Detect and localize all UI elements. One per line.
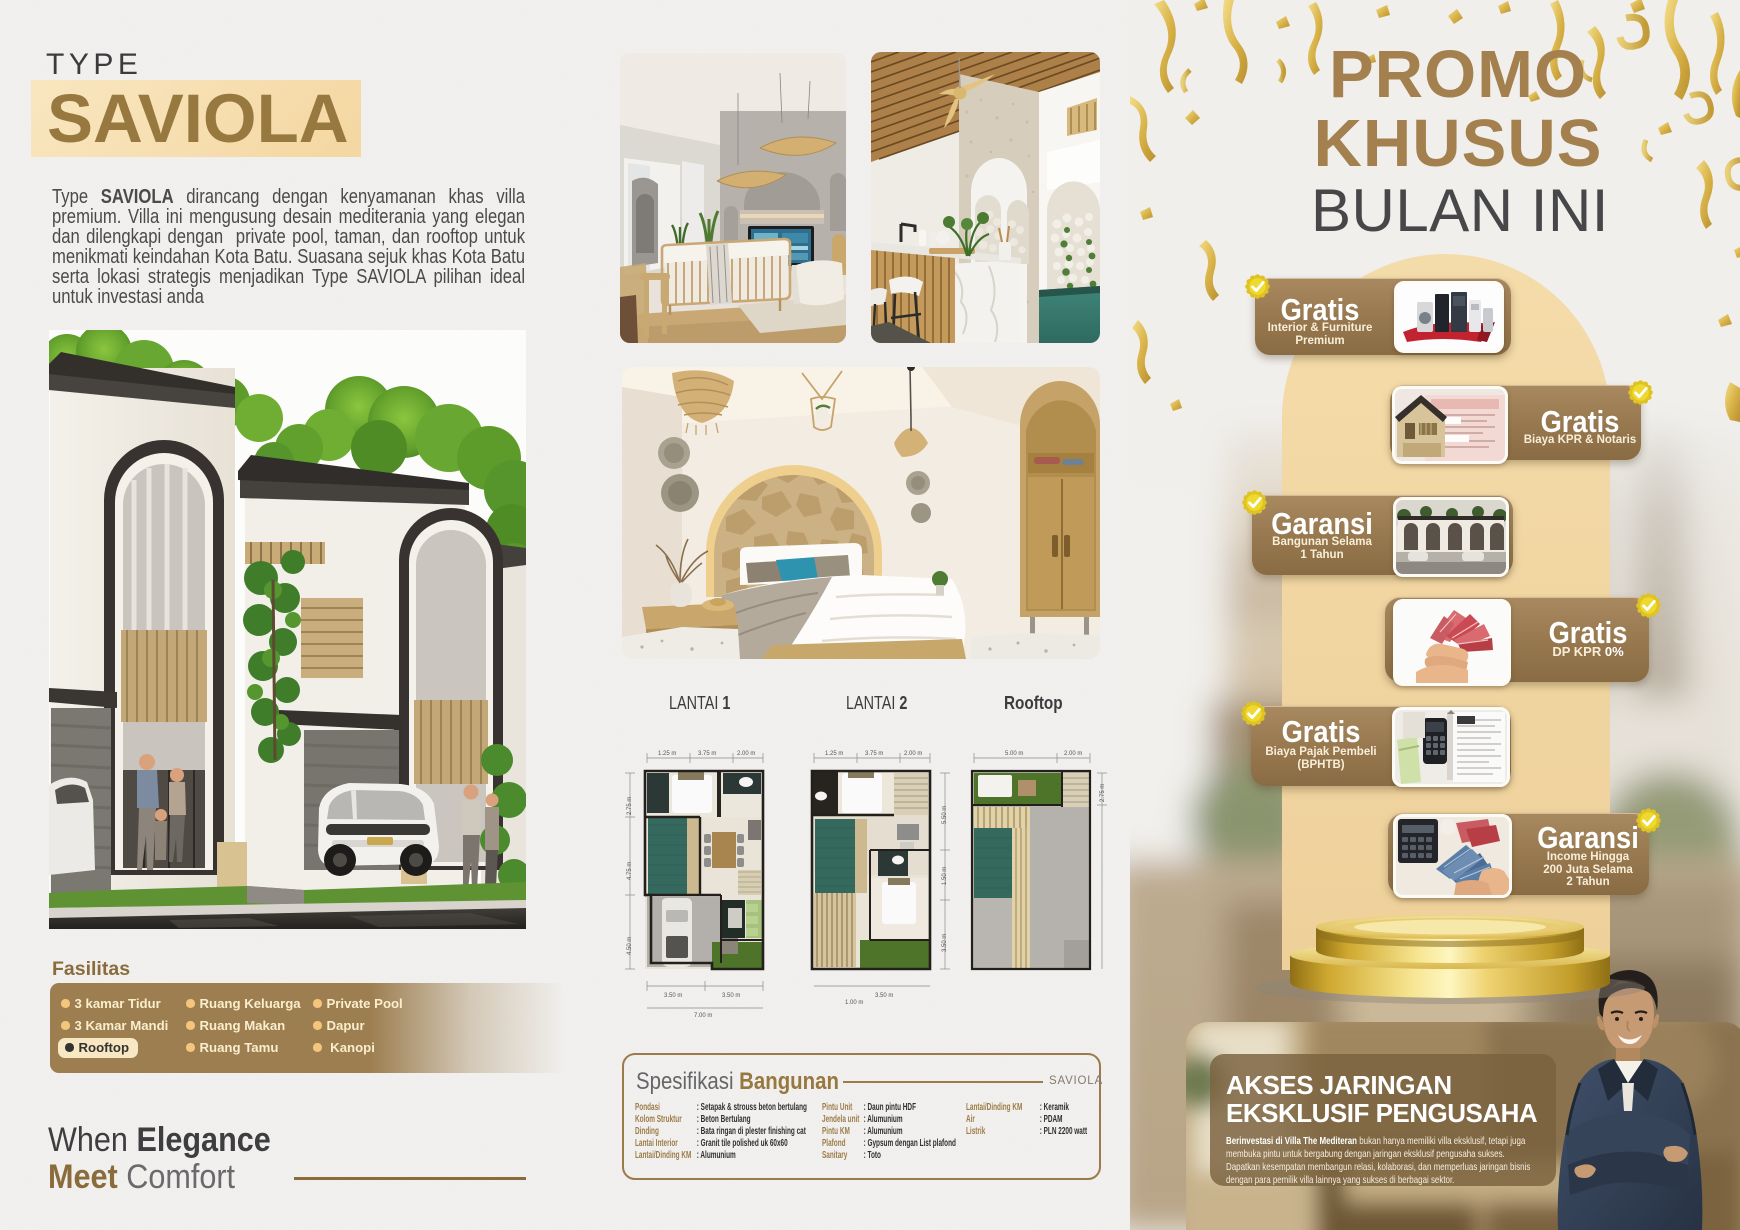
svg-text:2.75 m: 2.75 m xyxy=(1100,784,1106,802)
svg-text:1.00 m: 1.00 m xyxy=(845,1000,863,1006)
svg-text:4.75 m: 4.75 m xyxy=(627,862,633,880)
svg-text:3.50 m: 3.50 m xyxy=(664,993,682,999)
svg-text:1.25 m: 1.25 m xyxy=(825,751,843,757)
svg-text:2.00 m: 2.00 m xyxy=(904,751,922,757)
svg-text:3.75 m: 3.75 m xyxy=(865,751,883,757)
svg-text:3.75 m: 3.75 m xyxy=(698,751,716,757)
svg-text:2.00 m: 2.00 m xyxy=(737,751,755,757)
svg-text:4.50 m: 4.50 m xyxy=(627,937,633,955)
svg-text:7.00 m: 7.00 m xyxy=(694,1013,712,1019)
svg-text:3.50 m: 3.50 m xyxy=(875,993,893,999)
svg-text:1.25 m: 1.25 m xyxy=(658,751,676,757)
svg-text:5.00 m: 5.00 m xyxy=(1005,751,1023,757)
svg-text:3.50 m: 3.50 m xyxy=(942,934,948,952)
svg-text:5.50 m: 5.50 m xyxy=(942,806,948,824)
svg-text:1.50 m: 1.50 m xyxy=(942,867,948,885)
svg-text:2.75 m: 2.75 m xyxy=(627,797,633,815)
svg-text:3.50 m: 3.50 m xyxy=(722,993,740,999)
svg-text:2.00 m: 2.00 m xyxy=(1064,751,1082,757)
